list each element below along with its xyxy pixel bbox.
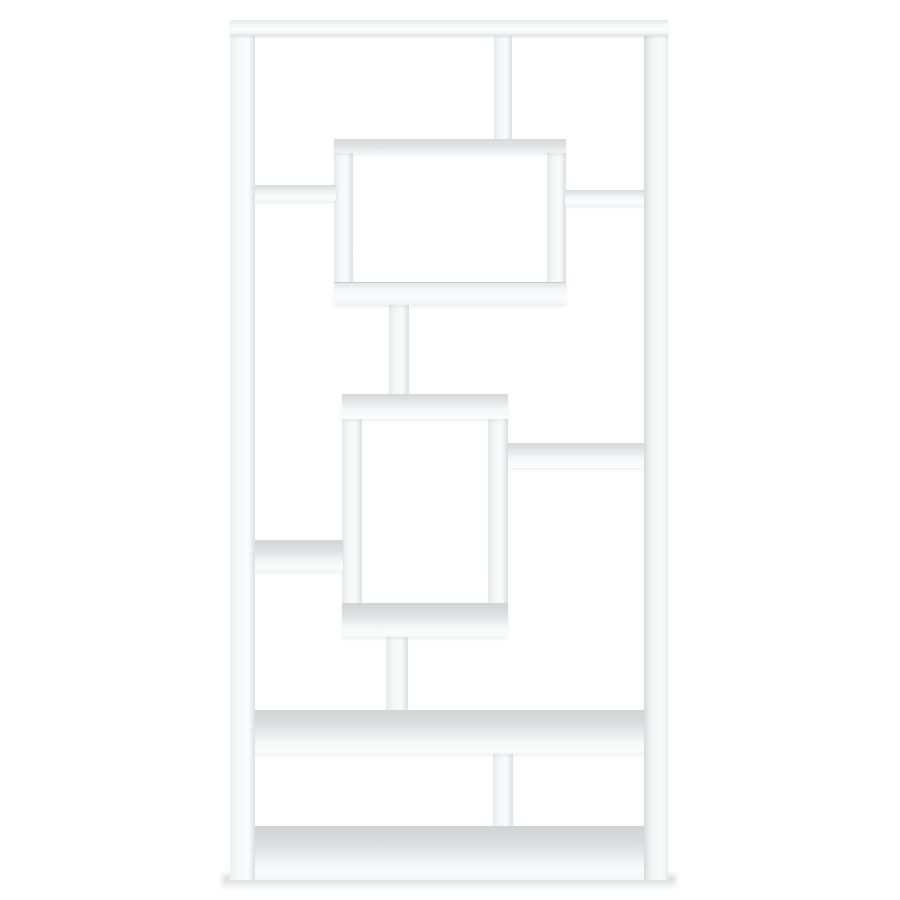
center-box-top <box>342 394 508 419</box>
top-divider <box>494 36 512 140</box>
middle-left-shelf <box>254 540 343 571</box>
upper-left-shelf <box>254 185 336 201</box>
upper-box-left-wall <box>334 139 353 304</box>
wide-shelf <box>254 710 646 754</box>
base-shelf <box>230 826 668 880</box>
top-bar <box>230 20 668 36</box>
product-photo <box>0 0 900 900</box>
upper-box-top <box>334 139 566 153</box>
lower-connector <box>386 637 408 711</box>
center-box-left-wall <box>342 395 362 637</box>
upper-connector <box>389 304 409 396</box>
upper-box-bottom <box>334 282 566 305</box>
upper-box-right-wall <box>547 139 566 304</box>
upper-right-shelf <box>565 190 646 205</box>
center-box-bottom <box>342 603 508 637</box>
center-box-right-wall <box>488 395 508 637</box>
middle-right-shelf <box>508 443 646 468</box>
bottom-divider <box>493 752 513 832</box>
right-post <box>644 20 668 880</box>
left-post <box>230 20 255 880</box>
